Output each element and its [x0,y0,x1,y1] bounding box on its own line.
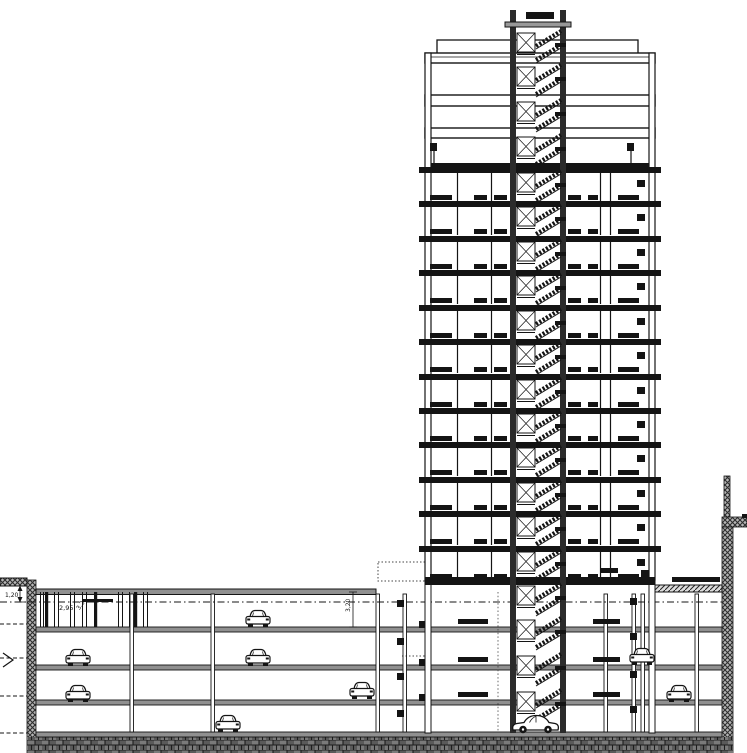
soil-hatch [27,737,733,753]
carf-instance [246,650,270,667]
level-marker-arrow [3,653,13,667]
col-instance [130,594,134,732]
story-instance [517,343,566,375]
tower-right-wall [649,53,655,580]
right-slab-end-mark [742,514,747,518]
carf-instance [66,686,90,703]
col-instance [695,594,699,732]
carf-instance [246,611,270,628]
bars-instance [458,692,620,697]
story-instance [517,584,566,616]
sq-instance [397,710,404,717]
col-instance [641,594,645,732]
story-instance [517,481,566,513]
ground-bar [672,577,720,582]
garage-floor-slab [36,732,722,737]
bars-instance [458,619,620,624]
postt-instance [45,592,48,627]
sq-instance [630,706,637,713]
sq-instance [397,638,404,645]
stair-core [505,10,571,733]
dim-text-295: 2,95 [59,604,73,612]
story-instance [517,205,566,237]
bars-instance [458,657,620,662]
tower-left-wall [425,53,431,580]
right-ground-slab [722,517,747,527]
carf-instance [66,650,90,667]
tower-floors [419,167,661,580]
entrance-ramp-dotted [378,562,425,581]
story-instance [517,412,566,444]
story-instance [517,378,566,410]
carf-instance [216,716,240,733]
col-instance [376,594,380,732]
story-instance [517,240,566,272]
upper-band-1 [425,95,655,106]
sq-instance [397,673,404,680]
carf-instance [667,686,691,703]
core-right-wall [560,10,566,733]
section-drawing: 1,20 2,95 3,2 3,20 [0,0,747,753]
col-instance [211,594,215,732]
right-retaining-wall [722,527,733,753]
building-section-svg: 1,20 2,95 3,2 3,20 [0,0,747,753]
ground-bar [600,568,618,573]
margin-level-dashes [0,624,27,733]
story-instance [517,309,566,341]
carf-instance [350,683,374,700]
story-instance [517,65,566,97]
core-left-wall [510,10,516,733]
ground-bar [641,570,649,578]
right-upper-wall [724,476,730,517]
postt-instance [94,592,97,627]
story-instance [517,618,566,650]
col-instance [604,594,608,732]
story-instance [517,171,566,203]
tower-left-wall-basement [425,580,431,733]
cars-instance [513,716,559,734]
left-retaining-wall [27,580,36,753]
core-roof-cap [526,12,554,19]
left-sidewalk-slab [0,578,27,586]
core-roof-slab [505,22,571,27]
postt-instance [134,592,137,627]
tower-ground-slab [425,577,655,585]
dim-text-120: 1,20 [5,592,19,599]
sq-instance [630,633,637,640]
story-instance [517,135,566,167]
reference-lines [0,562,722,732]
sq-instance [397,600,404,607]
garage-roof-right-hatched [652,585,722,592]
sq-instance [630,671,637,678]
story-instance [517,446,566,478]
dim-text-320: 3,20 [345,598,352,612]
story-instance [517,515,566,547]
story-instance [517,274,566,306]
